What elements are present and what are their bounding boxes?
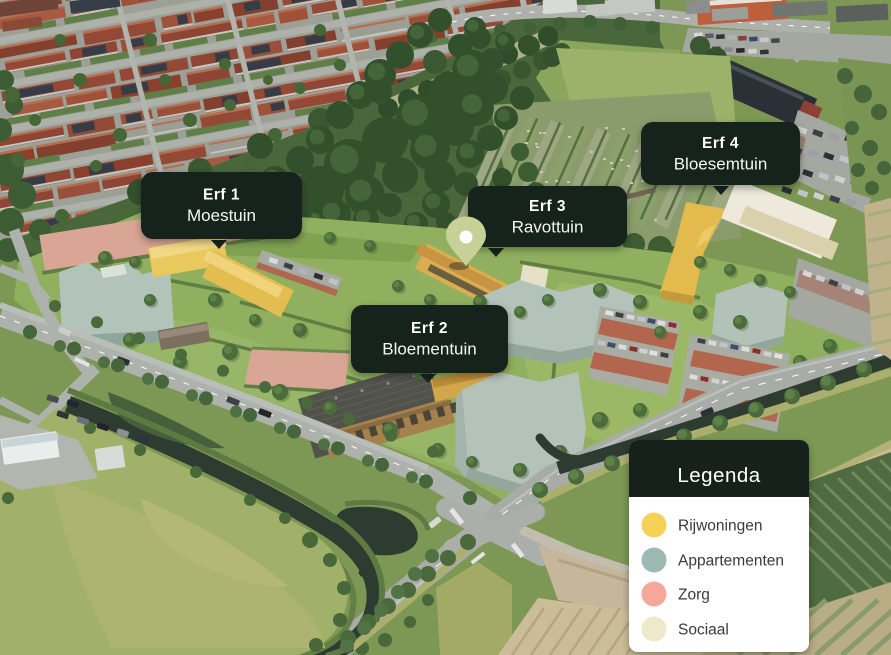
svg-text:Rijwoningen: Rijwoningen [678,518,762,535]
svg-text:Erf 1: Erf 1 [203,187,240,204]
svg-text:Zorg: Zorg [678,587,710,604]
svg-text:Sociaal: Sociaal [678,622,729,639]
svg-text:Erf 3: Erf 3 [529,198,566,215]
svg-text:Ravottuin: Ravottuin [512,218,584,237]
svg-text:Appartementen: Appartementen [678,553,784,570]
svg-text:Moestuin: Moestuin [187,206,256,225]
svg-text:Erf 4: Erf 4 [702,135,739,152]
svg-text:Legenda: Legenda [677,464,760,487]
svg-text:Bloesemtuin: Bloesemtuin [674,154,768,173]
svg-text:Bloementuin: Bloementuin [382,339,477,358]
svg-text:Erf 2: Erf 2 [411,320,448,337]
